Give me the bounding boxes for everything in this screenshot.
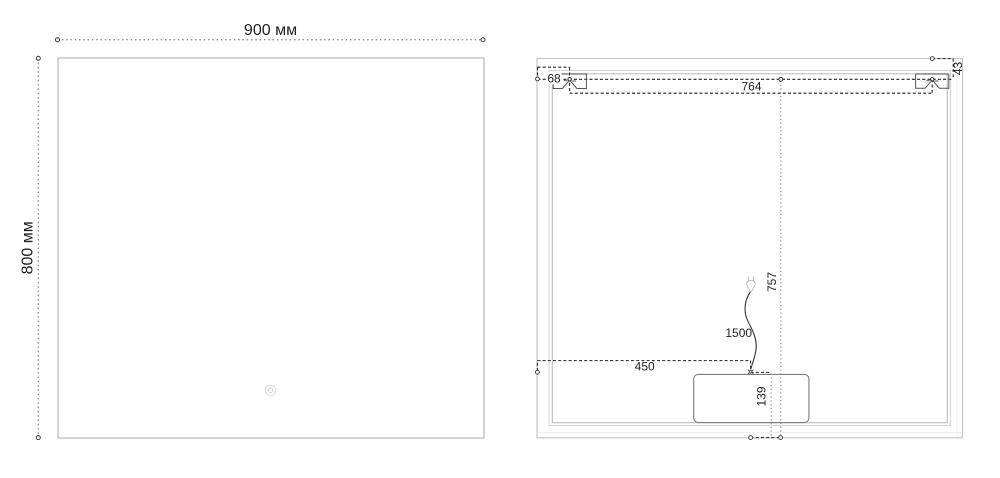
svg-text:757: 757	[765, 272, 779, 292]
svg-text:1500: 1500	[725, 326, 752, 340]
svg-text:68: 68	[547, 72, 561, 86]
svg-text:800 мм: 800 мм	[20, 221, 37, 274]
svg-text:450: 450	[635, 360, 655, 374]
svg-text:900 мм: 900 мм	[244, 22, 297, 39]
svg-text:764: 764	[741, 80, 761, 94]
svg-text:139: 139	[755, 386, 769, 406]
svg-text:43: 43	[951, 62, 965, 76]
